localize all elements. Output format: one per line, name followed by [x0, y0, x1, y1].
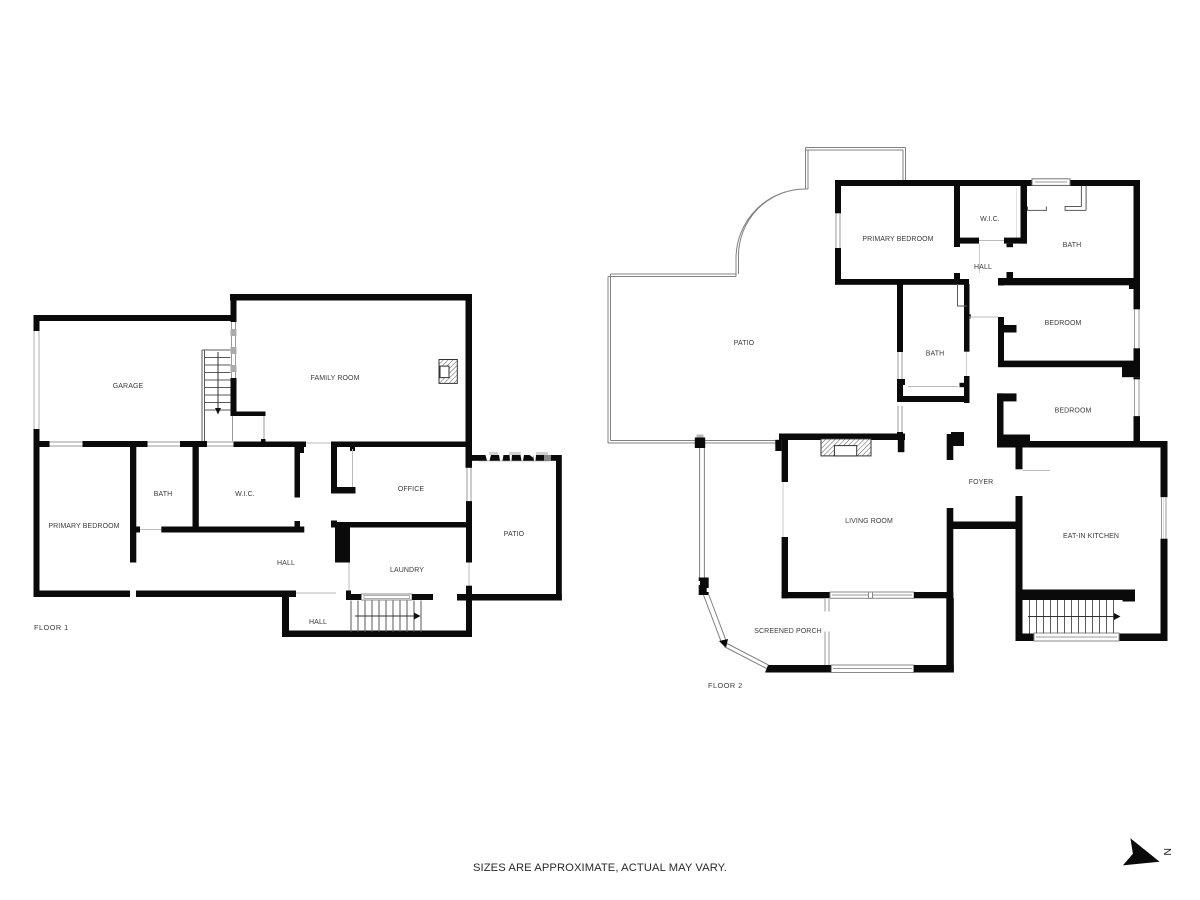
svg-text:PATIO: PATIO — [504, 531, 525, 538]
svg-text:HALL: HALL — [309, 619, 327, 626]
svg-text:BEDROOM: BEDROOM — [1045, 320, 1082, 327]
svg-text:PATIO: PATIO — [734, 340, 755, 347]
svg-text:OFFICE: OFFICE — [398, 486, 424, 493]
svg-text:PRIMARY BEDROOM: PRIMARY BEDROOM — [862, 236, 933, 243]
svg-text:FAMILY ROOM: FAMILY ROOM — [310, 375, 359, 382]
svg-text:SIZES ARE APPROXIMATE, ACTUAL: SIZES ARE APPROXIMATE, ACTUAL MAY VARY. — [473, 862, 727, 874]
svg-text:BATH: BATH — [154, 491, 173, 498]
svg-text:BATH: BATH — [1063, 242, 1082, 249]
svg-text:FOYER: FOYER — [969, 479, 994, 486]
svg-text:HALL: HALL — [974, 264, 992, 271]
svg-text:HALL: HALL — [277, 560, 295, 567]
svg-text:BEDROOM: BEDROOM — [1055, 408, 1092, 415]
svg-text:W.I.C.: W.I.C. — [235, 491, 255, 498]
svg-text:W.I.C.: W.I.C. — [980, 216, 1000, 223]
svg-text:EAT-IN KITCHEN: EAT-IN KITCHEN — [1063, 533, 1119, 540]
svg-text:GARAGE: GARAGE — [113, 383, 144, 390]
svg-text:LIVING ROOM: LIVING ROOM — [845, 518, 893, 525]
svg-text:FLOOR 1: FLOOR 1 — [34, 623, 69, 632]
svg-text:N: N — [1161, 848, 1173, 856]
svg-text:BATH: BATH — [926, 351, 945, 358]
svg-text:PRIMARY BEDROOM: PRIMARY BEDROOM — [48, 523, 119, 530]
svg-text:FLOOR 2: FLOOR 2 — [708, 681, 743, 690]
svg-text:LAUNDRY: LAUNDRY — [390, 567, 424, 574]
svg-text:SCREENED PORCH: SCREENED PORCH — [754, 628, 822, 635]
